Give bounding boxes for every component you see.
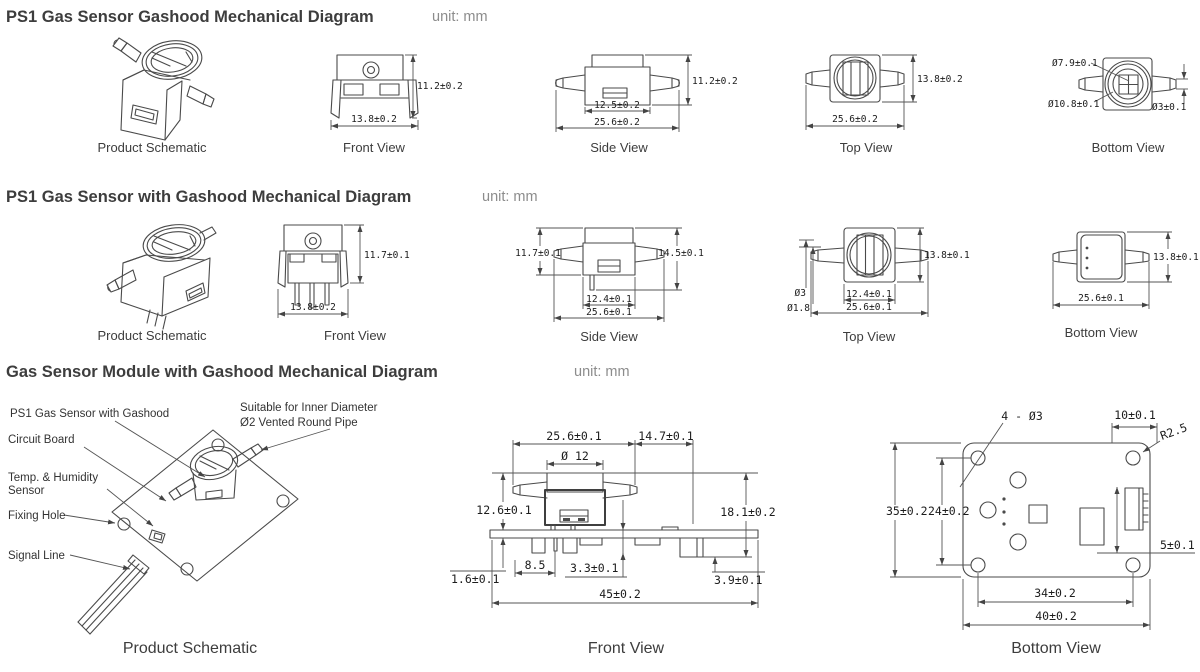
s2-side-right-height-dim: 14.5±0.1 [658, 248, 704, 259]
section3-unit: unit: mm [574, 364, 630, 380]
s2-top-outer-width-dim: 25.6±0.1 [846, 302, 892, 313]
section1: PS1 Gas Sensor Gashood Mechanical Diagra… [6, 8, 1188, 155]
s1-top-view: 13.8±0.2 25.6±0.2 Top View [806, 55, 963, 155]
s3-bottom-board-width-dim: 40±0.2 [1035, 609, 1077, 623]
s3-bottom-board-height-dim: 35±0.2 [886, 504, 928, 518]
s1-front-width-dim: 13.8±0.2 [351, 114, 397, 125]
s1-bottom-port-dia-dim: Ø3±0.1 [1152, 102, 1187, 113]
s2-front-height-dim: 11.7±0.1 [364, 250, 410, 261]
section2-unit: unit: mm [482, 189, 538, 205]
s1-side-view: 11.2±0.2 12.5±0.2 25.6±0.2 Side View [556, 55, 738, 155]
callout-fixing-hole: Fixing Hole [8, 510, 66, 522]
s2-front-view: 11.7±0.1 13.8±0.2 Front View [278, 225, 410, 343]
s3-board-drawing [78, 430, 298, 634]
s2-top-inner-width-dim: 12.4±0.1 [846, 289, 892, 300]
callout-pipe-line2: Ø2 Vented Round Pipe [240, 417, 358, 429]
s3-bottom-top-width-dim: 10±0.1 [1114, 408, 1156, 422]
s2-bottom-height-dim: 13.8±0.1 [1153, 252, 1199, 263]
diagram-canvas: PS1 Gas Sensor Gashood Mechanical Diagra… [0, 0, 1200, 672]
s2-side-inner-width-dim: 12.4±0.1 [586, 294, 632, 305]
s3-front-label: Front View [588, 640, 665, 657]
s1-top-width-dim: 25.6±0.2 [832, 114, 878, 125]
section1-title: PS1 Gas Sensor Gashood Mechanical Diagra… [6, 8, 374, 26]
mechanical-diagram-page: PS1 Gas Sensor Gashood Mechanical Diagra… [0, 0, 1200, 672]
s2-bottom-label: Bottom View [1065, 325, 1138, 340]
s2-side-label: Side View [580, 329, 638, 344]
s2-top-label: Top View [843, 329, 896, 344]
s1-front-height-dim: 11.2±0.2 [417, 81, 463, 92]
s3-front-sensor-height-dim: 12.6±0.1 [476, 503, 531, 517]
s1-bottom-view: Ø7.9±0.1 Ø10.8±0.1 Ø3±0.1 Bottom View [1048, 58, 1188, 155]
s3-front-total-height-dim: 18.1±0.2 [720, 505, 775, 519]
s1-top-label: Top View [840, 140, 893, 155]
s2-product-schematic-drawing [107, 221, 216, 329]
s2-side-view: 11.7±0.1 14.5±0.1 12.4±0.1 25.6±0.1 Side… [515, 228, 704, 344]
s2-top-view: Ø3 Ø1.8 13.8±0.1 12.4±0.1 25.6±0.1 Top V… [787, 228, 970, 344]
s2-front-width-dim: 13.8±0.2 [290, 302, 336, 313]
s1-side-height-dim: 11.2±0.2 [692, 76, 738, 87]
callout-temp-line2: Sensor [8, 485, 45, 497]
s2-top-height-dim: 13.8±0.1 [924, 250, 970, 261]
s1-bottom-label: Bottom View [1092, 140, 1165, 155]
section1-unit: unit: mm [432, 9, 488, 25]
s3-bottom-corner-radius-dim: R2.5 [1158, 420, 1189, 443]
s1-side-inner-width-dim: 12.5±0.2 [594, 100, 640, 111]
s3-front-board-thickness-dim: 1.6±0.1 [451, 572, 500, 586]
s3-bottom-holes-dim: 4 - Ø3 [1001, 409, 1043, 423]
s3-front-hood-dia-dim: Ø 12 [561, 449, 589, 463]
section3-title: Gas Sensor Module with Gashood Mechanica… [6, 363, 438, 381]
s1-side-outer-width-dim: 25.6±0.2 [594, 117, 640, 128]
s1-bottom-inner-dia-dim: Ø7.9±0.1 [1052, 58, 1098, 69]
s3-bottom-view: 4 - Ø3 10±0.1 R2.5 35±0.2 24±0.2 5±0.1 3… [886, 408, 1195, 657]
s3-bottom-offset-dim: 5±0.1 [1160, 538, 1195, 552]
s1-schematic-label: Product Schematic [97, 140, 207, 155]
section2: PS1 Gas Sensor with Gashood Mechanical D… [6, 188, 1199, 344]
s3-front-sensor-width-dim: 25.6±0.1 [546, 429, 601, 443]
s2-top-hole-dia-dim: Ø1.8 [787, 303, 810, 314]
s1-top-height-dim: 13.8±0.2 [917, 74, 963, 85]
s2-top-port-dia-dim: Ø3 [795, 288, 806, 299]
section2-title: PS1 Gas Sensor with Gashood Mechanical D… [6, 188, 411, 206]
s1-side-label: Side View [590, 140, 648, 155]
s2-front-label: Front View [324, 328, 387, 343]
s3-bottom-hole-spacing-v-dim: 24±0.2 [928, 504, 970, 518]
s3-product-schematic: PS1 Gas Sensor with Gashood Suitable for… [8, 402, 378, 657]
s2-bottom-width-dim: 25.6±0.1 [1078, 293, 1124, 304]
s2-bottom-view: 13.8±0.1 25.6±0.1 Bottom View [1053, 232, 1199, 340]
section3: Gas Sensor Module with Gashood Mechanica… [6, 363, 1195, 657]
s3-front-pin-length-dim: 3.3±0.1 [570, 561, 619, 575]
callout-sensor: PS1 Gas Sensor with Gashood [10, 408, 169, 420]
s1-bottom-outer-dia-dim: Ø10.8±0.1 [1048, 99, 1100, 110]
callout-signal-line: Signal Line [8, 550, 65, 562]
s1-product-schematic-drawing [113, 37, 214, 140]
s3-bottom-label: Bottom View [1011, 640, 1101, 657]
s1-front-view: 11.2±0.2 13.8±0.2 Front View [331, 55, 463, 155]
s2-side-outer-width-dim: 25.6±0.1 [586, 307, 632, 318]
s3-front-right-width-dim: 14.7±0.1 [638, 429, 693, 443]
callout-circuit-board: Circuit Board [8, 434, 74, 446]
callout-pipe-line1: Suitable for Inner Diameter [240, 402, 378, 414]
s3-front-board-width-dim: 45±0.2 [599, 587, 641, 601]
s1-front-label: Front View [343, 140, 406, 155]
callout-temp-line1: Temp. & Humidity [8, 472, 98, 484]
s3-schematic-label: Product Schematic [123, 640, 257, 657]
s2-schematic-label: Product Schematic [97, 328, 207, 343]
s3-front-view: 25.6±0.1 14.7±0.1 Ø 12 12.6±0.1 18.1±0.2… [450, 429, 776, 657]
s3-bottom-hole-spacing-h-dim: 34±0.2 [1034, 586, 1076, 600]
s3-front-pin-offset-dim: 8.5 [525, 558, 546, 572]
s3-front-component-height-dim: 3.9±0.1 [714, 573, 763, 587]
s2-side-left-height-dim: 11.7±0.1 [515, 248, 561, 259]
